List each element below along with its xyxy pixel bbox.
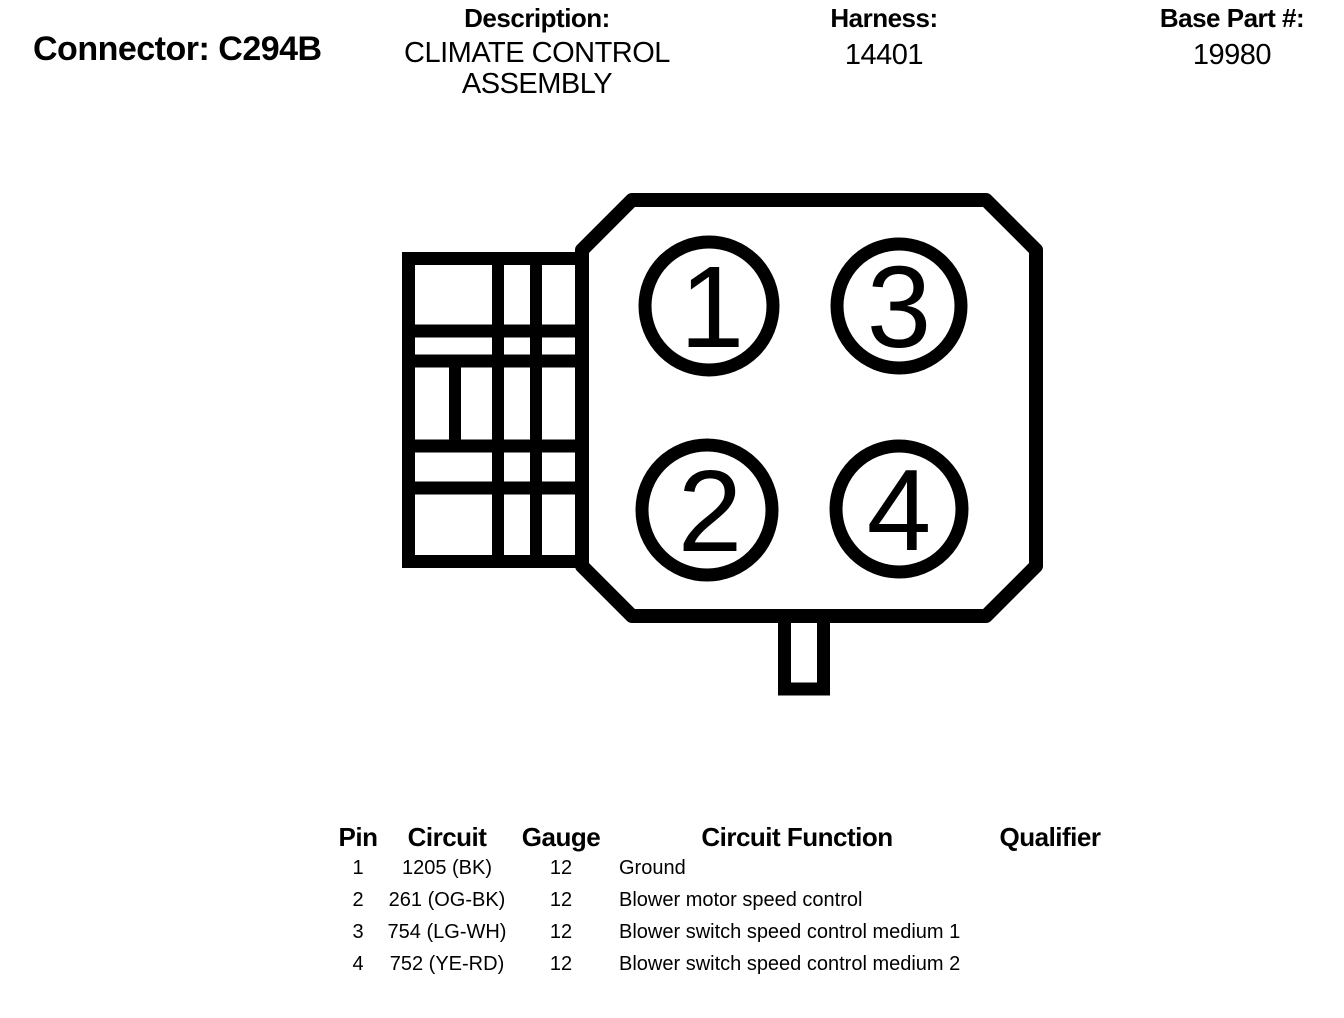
qualifier-cell	[985, 884, 1115, 916]
description-column: Description: CLIMATE CONTROL ASSEMBLY	[387, 3, 687, 100]
description-value-line1: CLIMATE CONTROL	[387, 38, 687, 69]
gauge-cell: 12	[513, 884, 609, 916]
pin-cell: 1	[335, 852, 381, 884]
gauge-cell: 12	[513, 852, 609, 884]
qualifier-cell	[985, 948, 1115, 980]
circuit-cell: 754 (LG-WH)	[381, 916, 513, 948]
connector-body	[582, 200, 1036, 616]
pin-2-number: 2	[678, 446, 743, 576]
circuit-cell: 261 (OG-BK)	[381, 884, 513, 916]
harness-label: Harness:	[784, 3, 984, 33]
column-header-gauge: Gauge	[513, 820, 609, 854]
function-cell: Blower switch speed control medium 2	[609, 948, 985, 980]
harness-value: 14401	[784, 40, 984, 71]
index-tab	[785, 612, 824, 689]
pin-table: Pin Circuit Gauge Circuit Function Quali…	[335, 820, 1115, 980]
circuit-cell: 1205 (BK)	[381, 852, 513, 884]
function-cell: Blower switch speed control medium 1	[609, 916, 985, 948]
pin-3-number: 3	[867, 242, 932, 372]
column-header-pin: Pin	[335, 820, 381, 854]
circuit-cell: 752 (YE-RD)	[381, 948, 513, 980]
connector-pinout-diagram: 1 3 2 4	[380, 185, 1060, 710]
description-value-line2: ASSEMBLY	[387, 69, 687, 100]
column-header-circuit: Circuit	[381, 820, 513, 854]
base-part-label: Base Part #:	[1112, 3, 1344, 33]
column-header-qualifier: Qualifier	[985, 820, 1115, 854]
pin-cell: 2	[335, 884, 381, 916]
pin-1-number: 1	[680, 242, 745, 372]
connector-title: Connector: C294B	[33, 30, 322, 68]
qualifier-cell	[985, 916, 1115, 948]
function-cell: Blower motor speed control	[609, 884, 985, 916]
gauge-cell: 12	[513, 916, 609, 948]
latch-grid	[402, 252, 588, 568]
base-part-value: 19980	[1112, 40, 1344, 71]
base-part-column: Base Part #: 19980	[1112, 3, 1344, 71]
gauge-cell: 12	[513, 948, 609, 980]
qualifier-cell	[985, 852, 1115, 884]
harness-column: Harness: 14401	[784, 3, 984, 71]
pin-cell: 4	[335, 948, 381, 980]
pin-cell: 3	[335, 916, 381, 948]
pin-4-number: 4	[867, 445, 932, 575]
description-label: Description:	[387, 3, 687, 33]
function-cell: Ground	[609, 852, 985, 884]
column-header-function: Circuit Function	[609, 820, 985, 854]
